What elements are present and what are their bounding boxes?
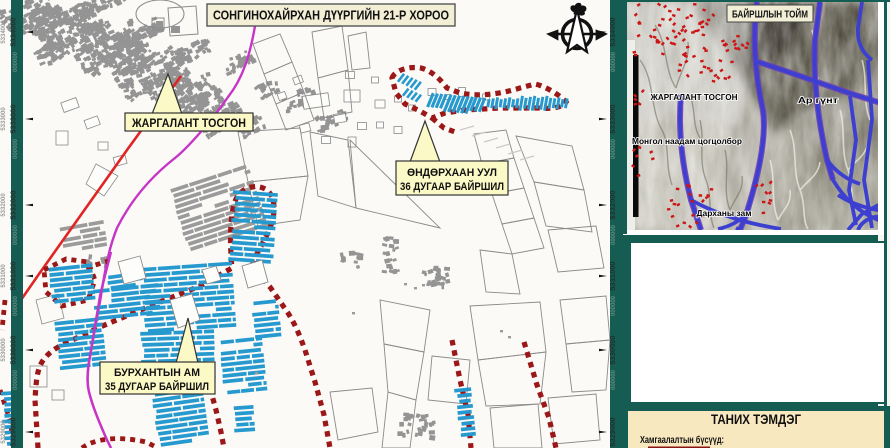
svg-text:000000: 000000	[611, 295, 617, 316]
svg-text:000000: 000000	[611, 138, 617, 159]
svg-text:ТАНИХ ТЭМДЭГ: ТАНИХ ТЭМДЭГ	[711, 412, 801, 427]
svg-text:БУРХАНТЫН АМ: БУРХАНТЫН АМ	[114, 367, 200, 379]
svg-text:5333000: 5333000	[1, 107, 7, 131]
svg-text:ЖАРГАЛАНТ ТОСГОН: ЖАРГАЛАНТ ТОСГОН	[131, 116, 246, 130]
svg-text:5330000: 5330000	[1, 338, 7, 362]
svg-text:Ар гүнт: Ар гүнт	[798, 95, 838, 105]
svg-text:5333000: 5333000	[9, 104, 18, 133]
svg-text:000000: 000000	[13, 369, 19, 390]
svg-text:5330000: 5330000	[9, 335, 18, 364]
svg-text:Дарханы зам: Дарханы зам	[697, 208, 752, 218]
svg-text:000000: 000000	[13, 51, 19, 72]
svg-text:Хамгаалалтын бүсүүд:: Хамгаалалтын бүсүүд:	[640, 434, 724, 446]
svg-text:000000: 000000	[611, 369, 617, 390]
svg-text:5329000: 5329000	[1, 420, 7, 444]
svg-text:000000: 000000	[13, 138, 19, 159]
svg-text:5334000: 5334000	[1, 20, 7, 44]
svg-text:Монгол наадам цогцолбор: Монгол наадам цогцолбор	[632, 136, 742, 146]
svg-text:5334000: 5334000	[9, 17, 18, 46]
svg-text:36 ДУГААР БАЙРШИЛ: 36 ДУГААР БАЙРШИЛ	[400, 180, 504, 193]
svg-text:ЖАРГАЛАНТ ТОСГОН: ЖАРГАЛАНТ ТОСГОН	[650, 92, 738, 102]
svg-text:000000: 000000	[13, 224, 19, 245]
svg-text:000000: 000000	[611, 51, 617, 72]
svg-text:5332000: 5332000	[9, 190, 18, 219]
svg-text:000000: 000000	[611, 224, 617, 245]
svg-text:000000: 000000	[13, 295, 19, 316]
svg-text:5331000: 5331000	[1, 264, 7, 288]
svg-text:5330000: 5330000	[608, 335, 617, 364]
svg-text:5329000: 5329000	[608, 417, 617, 446]
svg-text:5334000: 5334000	[608, 17, 617, 46]
svg-text:5332000: 5332000	[608, 190, 617, 219]
svg-text:СОНГИНОХАЙРХАН ДҮҮРГИЙН 21-Р Х: СОНГИНОХАЙРХАН ДҮҮРГИЙН 21-Р ХОРОО	[213, 8, 449, 23]
svg-text:5333000: 5333000	[608, 104, 617, 133]
svg-text:ӨНДӨРХААН УУЛ: ӨНДӨРХААН УУЛ	[407, 167, 497, 179]
svg-text:5329000: 5329000	[9, 417, 18, 446]
svg-text:5331000: 5331000	[608, 261, 617, 290]
svg-text:5331000: 5331000	[9, 261, 18, 290]
svg-text:35 ДУГААР БАЙРШИЛ: 35 ДУГААР БАЙРШИЛ	[105, 380, 209, 393]
svg-text:5332000: 5332000	[1, 193, 7, 217]
svg-text:БАЙРШЛЫН ТОЙМ: БАЙРШЛЫН ТОЙМ	[732, 8, 808, 21]
